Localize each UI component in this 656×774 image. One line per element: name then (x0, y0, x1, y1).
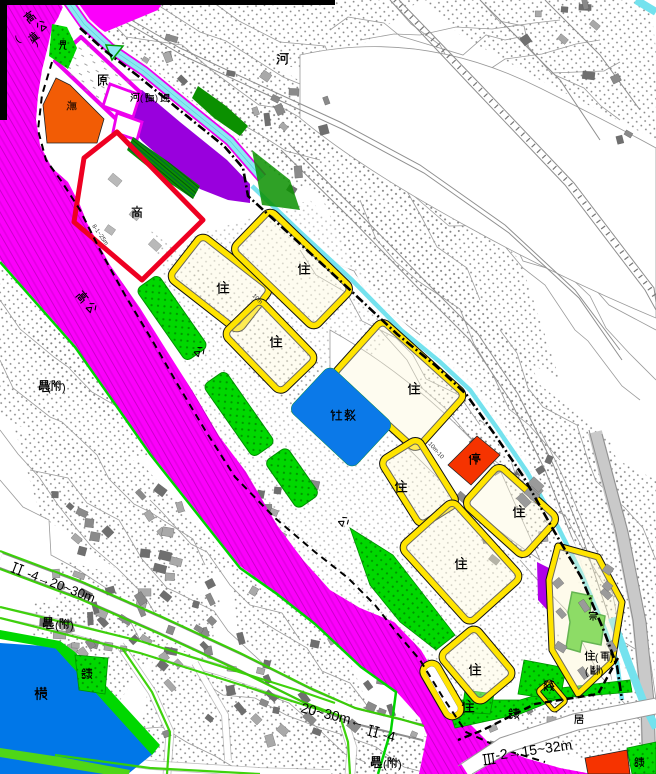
svg-text:): ) (600, 667, 603, 678)
svg-text:(: ( (383, 759, 387, 771)
svg-text:): ) (398, 759, 402, 771)
svg-text:(: ( (47, 382, 51, 394)
svg-text:): ) (155, 93, 158, 103)
svg-text:(: ( (55, 620, 59, 632)
svg-text:(: ( (140, 93, 143, 103)
svg-text:): ) (62, 382, 66, 394)
svg-text:): ) (610, 653, 613, 664)
svg-text:): ) (70, 620, 74, 632)
